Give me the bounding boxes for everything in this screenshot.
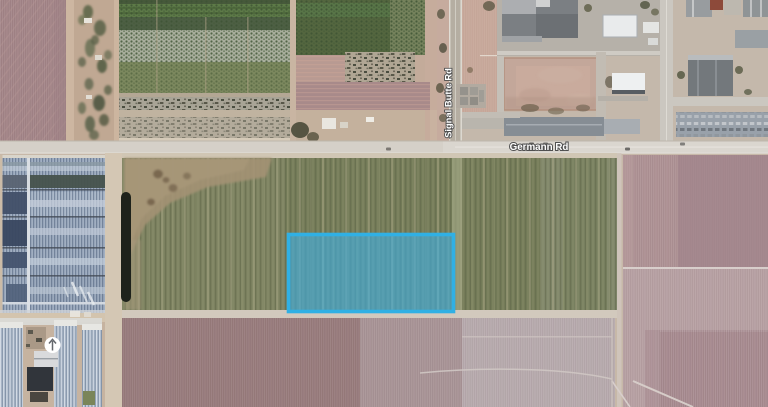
svg-text:Germann Rd: Germann Rd <box>510 142 569 153</box>
svg-text:Signal Butte Rd: Signal Butte Rd <box>443 68 454 138</box>
